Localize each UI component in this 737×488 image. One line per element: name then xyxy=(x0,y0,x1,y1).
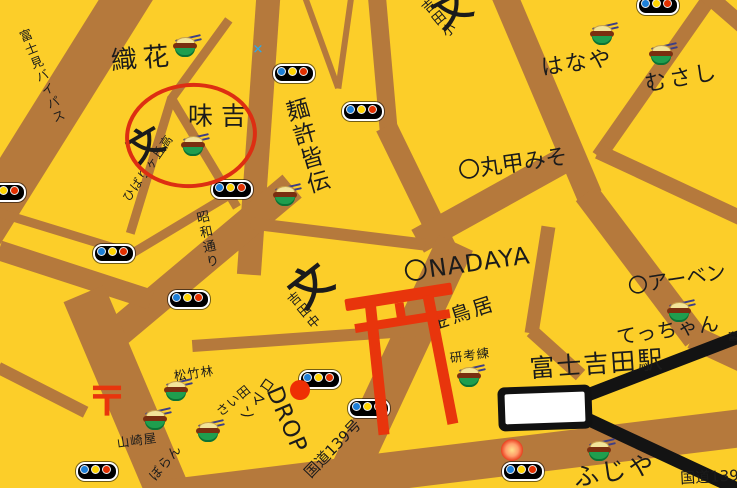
traffic-light-dot xyxy=(80,465,89,474)
bowl-body xyxy=(166,392,186,401)
traffic-light-dot xyxy=(91,465,100,474)
bowl-body xyxy=(651,56,671,65)
label-route139-east: 国道139号 xyxy=(680,468,737,487)
road-segment xyxy=(525,226,556,335)
traffic-light-dot xyxy=(314,373,323,382)
traffic-light-icon xyxy=(273,64,315,83)
traffic-light-icon xyxy=(637,0,679,15)
traffic-light-icon xyxy=(0,183,26,202)
traffic-light-icon xyxy=(342,102,384,121)
traffic-light-dot xyxy=(299,67,308,76)
bowl-body xyxy=(145,421,165,430)
road-segment xyxy=(0,362,88,417)
traffic-light-dot xyxy=(108,247,117,256)
bowl-body xyxy=(592,36,612,45)
label-orihana: 織花 xyxy=(110,43,176,74)
traffic-light-dot xyxy=(102,465,111,474)
traffic-light-dot xyxy=(346,105,355,114)
traffic-light-icon xyxy=(76,462,118,481)
traffic-light-dot xyxy=(119,247,128,256)
traffic-light-dot xyxy=(357,105,366,114)
traffic-light-dot xyxy=(663,0,672,8)
bowl-menkyokaiden-icon xyxy=(273,185,299,208)
torii-gate-icon xyxy=(344,282,473,442)
label-fuji-partial: 富 xyxy=(728,333,737,343)
traffic-light-icon xyxy=(168,290,210,309)
station-symbol xyxy=(497,384,592,431)
traffic-light-dot xyxy=(183,293,192,302)
bowl-saida-icon xyxy=(196,421,222,444)
traffic-light-dot xyxy=(517,465,526,474)
traffic-light-dot xyxy=(226,183,235,192)
road-segment xyxy=(335,0,354,89)
traffic-light-dot xyxy=(641,0,650,8)
school-mark-yoshida-elem: 文 xyxy=(426,0,477,35)
traffic-light-dot xyxy=(652,0,661,8)
post-office-symbol: 〒 xyxy=(87,382,127,422)
traffic-light-icon xyxy=(93,244,135,263)
traffic-light-dot xyxy=(506,465,515,474)
road-segment xyxy=(250,217,426,250)
traffic-light-dot xyxy=(325,373,334,382)
traffic-light-dot xyxy=(352,402,361,411)
traffic-light-dot xyxy=(97,247,106,256)
traffic-light-dot xyxy=(172,293,181,302)
traffic-light-dot xyxy=(277,67,286,76)
traffic-light-dot xyxy=(237,183,246,192)
station-symbol-inner xyxy=(505,392,586,425)
bowl-body xyxy=(198,433,218,442)
red-dot-marker xyxy=(290,380,310,400)
bowl-hanaya-icon xyxy=(590,24,616,47)
bowl-body xyxy=(175,48,195,57)
bowl-orihana-icon xyxy=(173,36,199,59)
bowl-body xyxy=(275,197,295,206)
blue-cross-marker: ✕ xyxy=(253,44,264,57)
torii-strut xyxy=(395,302,406,319)
traffic-light-dot xyxy=(0,186,8,195)
map-canvas: 織花味吉はなやむさし〇丸甲みそ〇NADAYA〇アーベンてっちゃん金鳥居研考練富士… xyxy=(0,0,737,488)
traffic-light-dot xyxy=(215,183,224,192)
traffic-light-dot xyxy=(528,465,537,474)
bowl-musashi-icon xyxy=(649,44,675,67)
traffic-light-dot xyxy=(288,67,297,76)
label-hanaya: はなや xyxy=(540,48,614,80)
glow-dot-marker xyxy=(501,439,523,461)
label-shochikurin: 松竹林 xyxy=(173,365,215,383)
traffic-light-dot xyxy=(194,293,203,302)
traffic-light-icon xyxy=(502,462,544,481)
traffic-light-dot xyxy=(10,186,19,195)
bowl-yamazakiya-icon xyxy=(143,409,169,432)
bowl-shochikurin-icon xyxy=(164,380,190,403)
traffic-light-dot xyxy=(368,105,377,114)
